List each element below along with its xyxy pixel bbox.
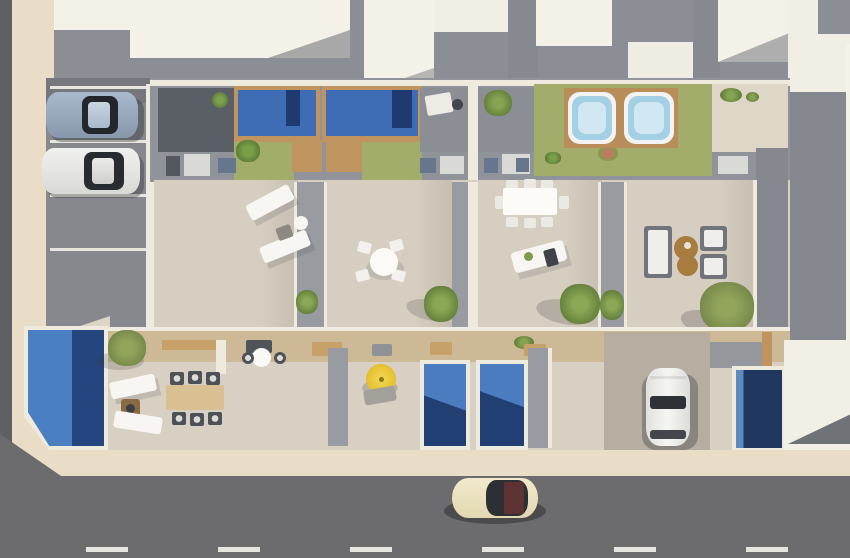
- pool-1-inset: [286, 90, 300, 126]
- dining-chair: [524, 218, 536, 228]
- parking-line: [50, 248, 146, 251]
- wood-wall: [762, 332, 772, 368]
- terrace-plant: [720, 88, 742, 102]
- deck-bench: [430, 342, 452, 355]
- garden-path: [528, 348, 550, 448]
- palm-tree: [600, 290, 624, 320]
- umbrella-pole: [379, 377, 384, 382]
- ac-unit: [516, 158, 529, 172]
- car-blue-roof: [88, 102, 110, 128]
- rect-dining-table: [503, 188, 557, 215]
- tree: [700, 282, 754, 332]
- ac-unit: [218, 158, 236, 173]
- central-wall-top: [468, 82, 478, 182]
- roof-gray-notch: [818, 0, 850, 34]
- car-parked-rear-glass: [650, 430, 686, 439]
- deck-band-wall: [104, 327, 790, 331]
- dining-chair: [541, 217, 553, 227]
- planter-wood-wall: [162, 340, 222, 350]
- table-item: [684, 242, 691, 249]
- bistro-table: [252, 348, 271, 367]
- plunge-pool-water: [480, 364, 524, 446]
- bistro-chair: [242, 352, 254, 364]
- side-table: [294, 216, 308, 230]
- garden-path-wall: [548, 348, 552, 448]
- right-path: [756, 148, 788, 348]
- wood-steps-2: [326, 140, 362, 172]
- fire-bowl: [452, 99, 463, 110]
- tree: [108, 330, 146, 366]
- armchair-cushion: [704, 230, 723, 247]
- roof-white-5: [536, 0, 612, 46]
- grass-unit2: [362, 142, 422, 182]
- round-dining-table: [370, 248, 398, 276]
- divider-wall: [324, 182, 327, 332]
- aerial-render-canvas: Top-down 3D architectural render of four…: [0, 0, 850, 558]
- dining-chair: [190, 413, 204, 426]
- lane-dash: [746, 547, 788, 552]
- palm-tree: [560, 284, 600, 324]
- patio-plant: [212, 92, 228, 108]
- lane-dash: [482, 547, 524, 552]
- central-wall: [468, 182, 478, 332]
- sofa-cushions: [648, 230, 668, 274]
- plunge-pool-water: [424, 364, 466, 446]
- hot-tub-2-seats: [634, 102, 664, 134]
- hot-tub-1-seats: [578, 102, 606, 134]
- ac-unit: [484, 158, 498, 173]
- road-car-roof-stripe: [504, 482, 524, 514]
- wood-dining-table: [166, 385, 224, 410]
- flower-patch: [598, 146, 618, 161]
- ac-unit: [440, 156, 464, 174]
- divider-wall: [624, 182, 627, 332]
- garden-stairs: [328, 348, 348, 446]
- pool-1-water: [238, 90, 316, 136]
- deck-bench: [372, 344, 392, 356]
- dining-chair: [170, 372, 184, 385]
- dining-chair: [206, 372, 220, 385]
- terrace-plant: [746, 92, 759, 102]
- car-parked-hood-line: [650, 376, 686, 379]
- lane-dash: [350, 547, 392, 552]
- car-parked-windshield: [650, 396, 686, 409]
- plunge-pool-water: [736, 370, 782, 448]
- wood-steps-1: [292, 140, 322, 172]
- palm-tree: [424, 286, 458, 322]
- lane-dash: [86, 547, 128, 552]
- bottom-sidewalk: [0, 450, 850, 478]
- lane-dash: [218, 547, 260, 552]
- right-roof-sliver: [846, 44, 850, 344]
- stairs-right: [704, 342, 764, 368]
- dining-chair: [172, 412, 186, 425]
- patio-palm: [484, 90, 512, 116]
- pool-2-inset: [392, 90, 412, 128]
- right-neighbor-roof: [786, 92, 850, 344]
- dining-chair: [188, 371, 202, 384]
- lounge-table: [677, 255, 698, 276]
- dining-chair: [559, 196, 569, 209]
- bush: [236, 140, 260, 162]
- ac-unit: [718, 156, 748, 174]
- ac-unit: [166, 156, 180, 176]
- bush: [545, 152, 561, 164]
- lane-dash: [614, 547, 656, 552]
- road: [0, 476, 850, 558]
- armchair-cushion: [704, 258, 723, 275]
- day-bed-pillow: [524, 252, 533, 261]
- garden-pool-water: [28, 330, 104, 446]
- ac-unit: [184, 154, 210, 176]
- dining-chair: [208, 412, 222, 425]
- parking-line: [50, 86, 146, 89]
- planter-wall: [216, 340, 226, 374]
- ac-unit: [420, 158, 436, 173]
- dining-chair: [506, 217, 518, 227]
- palm-tree: [296, 290, 318, 314]
- bistro-chair: [274, 352, 286, 364]
- car-white-roof: [92, 158, 114, 184]
